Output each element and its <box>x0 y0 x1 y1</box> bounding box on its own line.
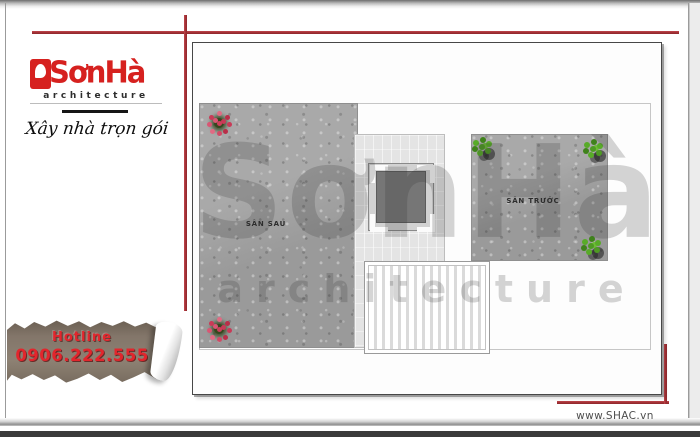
logo-row: SơnHà <box>30 57 162 89</box>
accent-line-top <box>32 31 679 34</box>
corner-column-bottom-left <box>370 214 388 232</box>
company-logo: SơnHà architecture <box>30 57 162 104</box>
corner-column-top-left <box>370 165 388 183</box>
accent-line-bottom-right-horizontal <box>557 401 669 404</box>
hotline-banner: Hotline 0906.222.555 <box>7 318 179 384</box>
flower-blossoms <box>217 327 222 332</box>
hotline-label: Hotline <box>17 330 147 345</box>
pergola-slats <box>368 265 486 350</box>
logo-subtitle: architecture <box>30 91 162 104</box>
flower-shrub-icon <box>206 316 232 342</box>
page-canvas: SơnHà architecture Xây nhà trọn gói Hotl… <box>0 0 700 437</box>
pergola-louver-roof <box>364 261 490 354</box>
back-yard-label: SÂN SAU <box>213 220 319 228</box>
flower-blossoms <box>217 121 222 126</box>
green-plant-icon <box>582 138 604 160</box>
logo-wordmark: SơnHà <box>49 56 144 88</box>
corner-column-top-right <box>417 165 435 183</box>
flower-shrub-icon <box>206 110 232 136</box>
frame-left-line <box>5 3 6 425</box>
logo-divider <box>62 110 128 113</box>
green-plant-icon <box>471 136 493 158</box>
plant-foliage <box>479 144 485 150</box>
frame-right-pad <box>689 3 700 425</box>
hotline-phone-number: 0906.222.555 <box>7 346 157 365</box>
frame-top-bevel <box>0 0 700 9</box>
plan-sheet: SÂN SAU SÂN TRƯỚC SơnHà architecture <box>192 42 662 395</box>
front-yard-label: SÂN TRƯỚC <box>483 197 583 205</box>
corner-column-bottom-right <box>417 214 435 232</box>
green-plant-icon <box>580 235 602 257</box>
plant-foliage <box>590 146 596 152</box>
website-url: www.SHAC.vn <box>560 410 670 422</box>
company-tagline: Xây nhà trọn gói <box>21 119 173 139</box>
logo-mark-icon <box>30 59 51 89</box>
frame-bottom-bar <box>0 431 700 437</box>
plant-foliage <box>588 243 594 249</box>
accent-line-left <box>184 15 187 311</box>
accent-line-bottom-right-vertical <box>664 344 667 404</box>
